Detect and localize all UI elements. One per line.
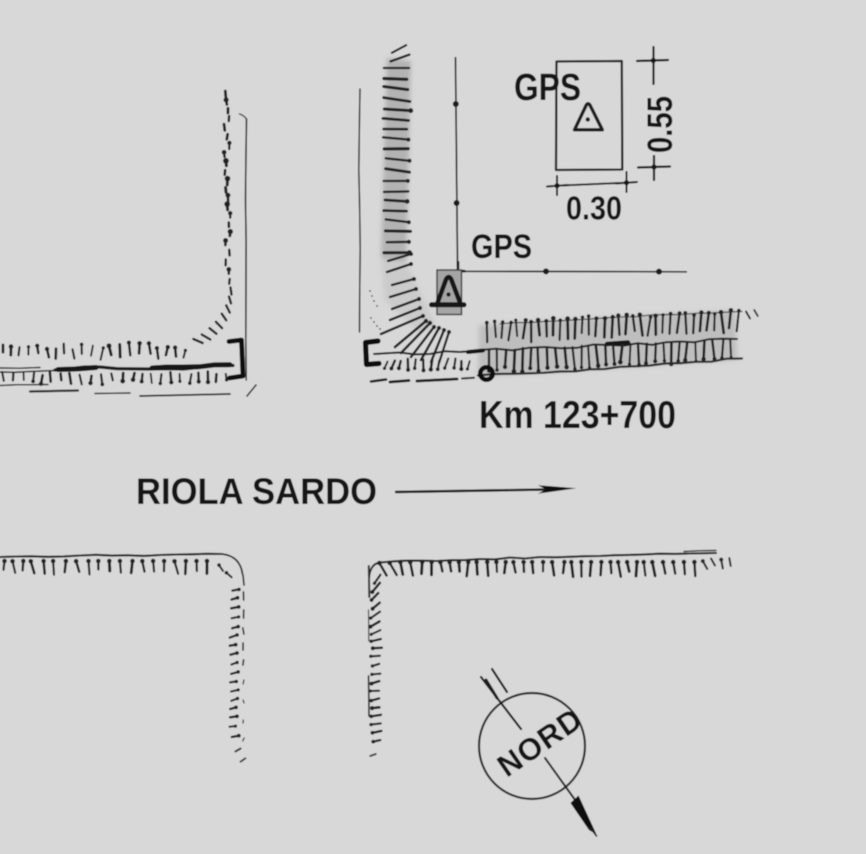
svg-text:GPS: GPS [471, 228, 532, 266]
svg-text:GPS: GPS [514, 67, 581, 109]
svg-text:0.30: 0.30 [566, 190, 622, 227]
svg-text:0.55: 0.55 [641, 96, 680, 153]
svg-text:Km 123+700: Km 123+700 [479, 394, 676, 437]
svg-text:RIOLA SARDO: RIOLA SARDO [136, 471, 377, 512]
